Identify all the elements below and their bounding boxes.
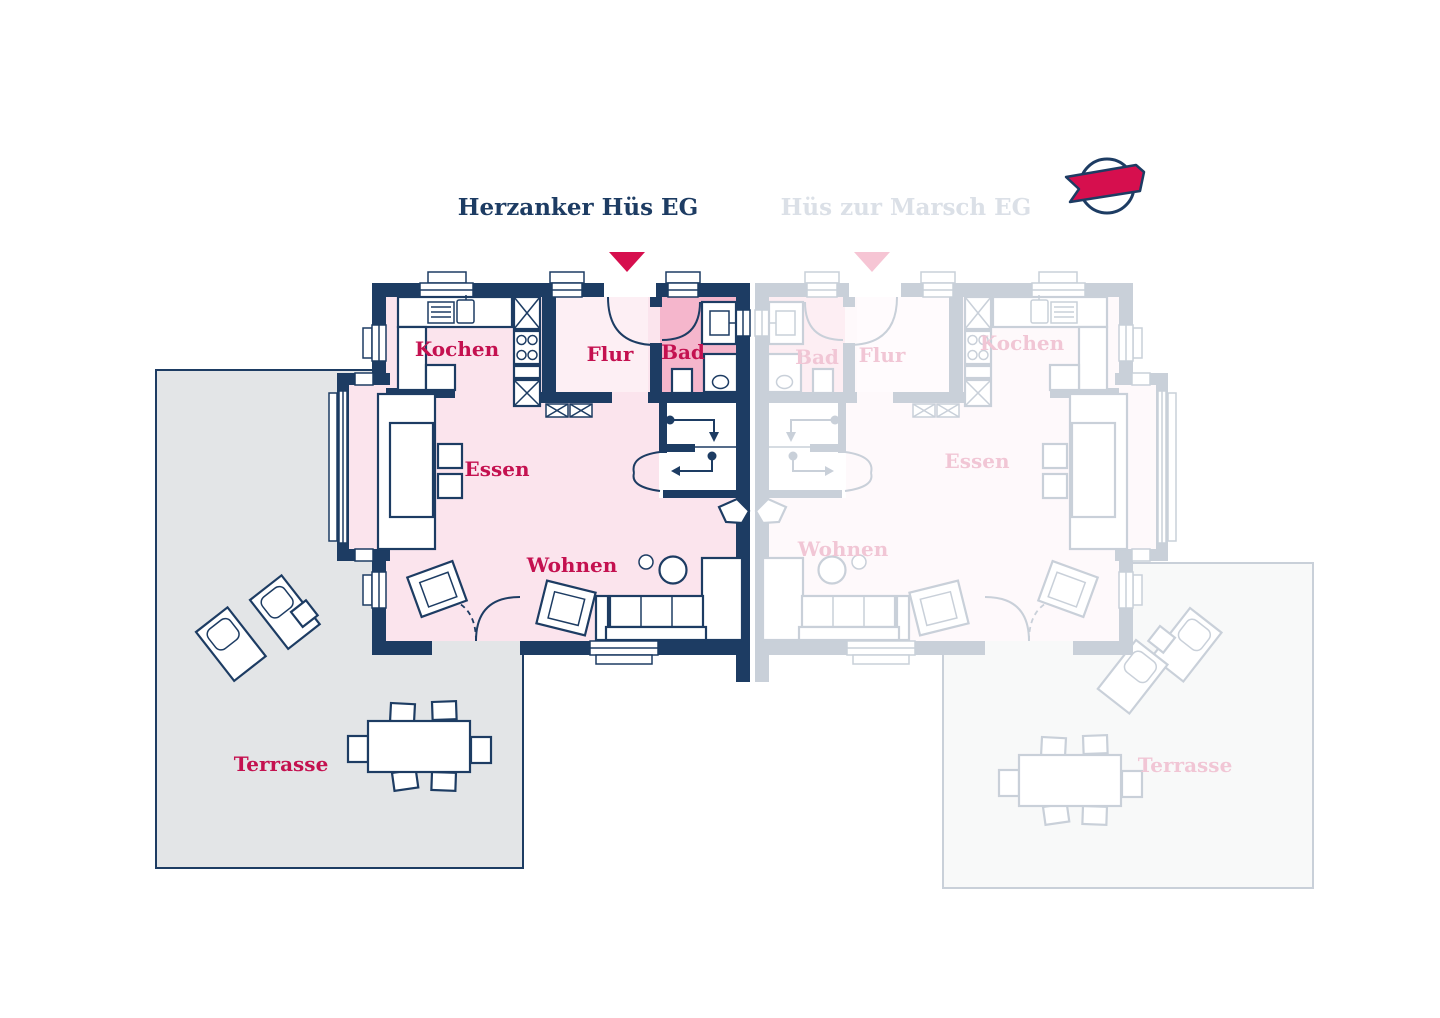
room-label-bad-2: Bad (795, 345, 839, 369)
room-label-wohnen: Wohnen (526, 553, 618, 577)
room-label-flur: Flur (587, 342, 634, 366)
building-marsch (755, 272, 1176, 682)
circle-ribbon-logo-icon (1066, 159, 1144, 213)
plan-marsch: Bad Flur Kochen Essen Wohnen Terrasse (755, 272, 1313, 888)
plan-herzanker: Kochen Flur Bad Essen Wohnen Terrasse (156, 272, 750, 868)
building-herzanker (329, 272, 750, 682)
room-label-bad: Bad (661, 340, 705, 364)
room-label-essen-2: Essen (944, 449, 1009, 473)
room-label-kochen: Kochen (415, 337, 500, 361)
active-plan-marker-icon (609, 252, 645, 272)
room-label-terrasse: Terrasse (234, 752, 329, 776)
room-label-flur-2: Flur (859, 343, 906, 367)
inactive-plan-marker-icon (854, 252, 890, 272)
floorplan-page: Kochen Flur Bad Essen Wohnen Terrasse Ba… (0, 0, 1440, 1018)
room-label-kochen-2: Kochen (980, 331, 1065, 355)
tab-hues-zur-marsch-eg[interactable]: Hüs zur Marsch EG (781, 194, 1032, 221)
room-label-terrasse-2: Terrasse (1138, 753, 1233, 777)
room-label-wohnen-2: Wohnen (797, 537, 889, 561)
tab-herzanker-hues-eg[interactable]: Herzanker Hüs EG (458, 194, 698, 221)
room-label-essen: Essen (464, 457, 529, 481)
